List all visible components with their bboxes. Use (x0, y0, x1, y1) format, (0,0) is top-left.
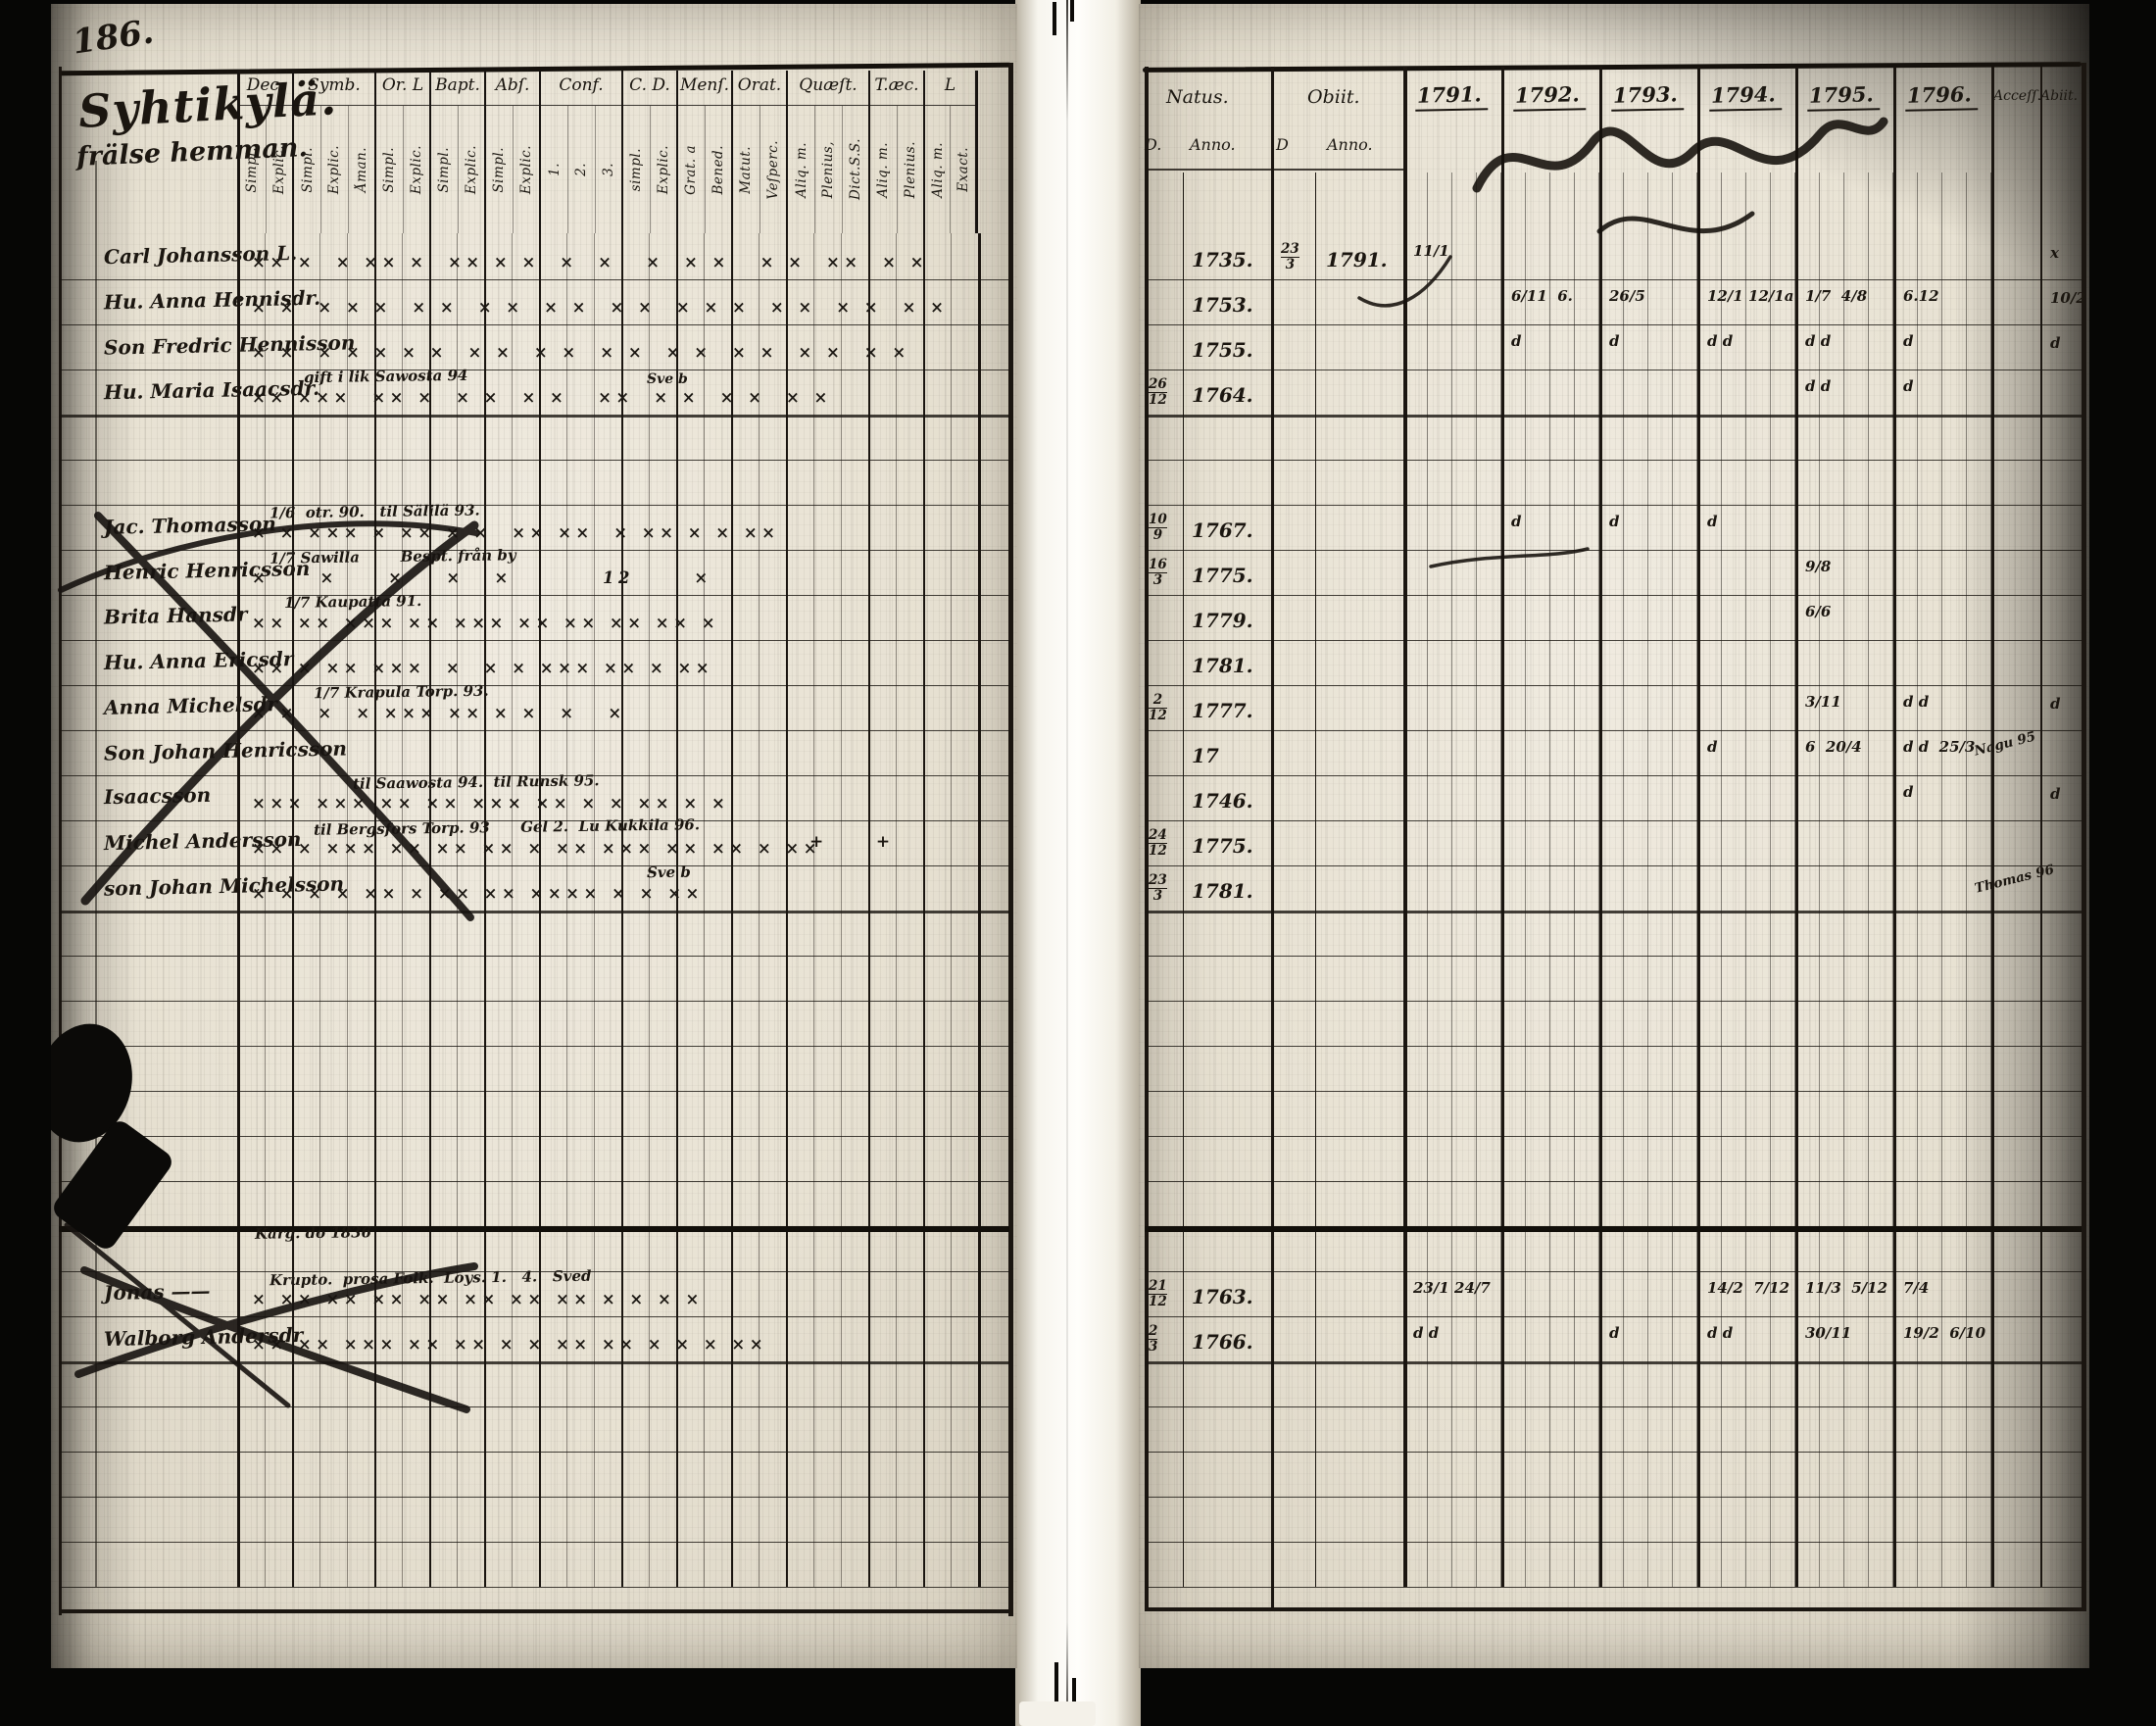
column-subgroup: Simpl.Explic. (431, 106, 484, 233)
margin-note: til Saawosta 94. til Runsk 95. (353, 771, 600, 793)
year-mark-cell: d d (1805, 332, 1831, 350)
register-row-right (1145, 911, 2082, 957)
natus-year-cell: 1755. (1192, 338, 1253, 362)
communion-marks: × × × × × 12 × (252, 568, 712, 587)
subcolumn-label: Veſperc. (765, 140, 781, 199)
accessit-cell: Thomas 96 (1973, 862, 2055, 897)
subcolumn-label: Aliq. m. (875, 142, 891, 198)
register-row-right (1145, 1497, 2082, 1543)
fraction-value: 2412 (1149, 829, 1167, 858)
register-row-right: 2121777.3/11d dd (1145, 685, 2082, 731)
register-row-left: Hu. Anna Ericsdr×× × ×× ××× × × × ××× ××… (59, 640, 1009, 686)
column-group: Or. LSimpl.Explic. (374, 71, 429, 233)
column-group-label: Bapt. (431, 71, 484, 106)
natus-year-cell: 1767. (1192, 518, 1253, 542)
column-group-label: Symb. (294, 71, 374, 106)
year-mark-cell: 1/7 4/8 (1805, 287, 1867, 305)
fraction-denominator: 12 (1149, 392, 1167, 408)
fraction-numerator: 26 (1149, 378, 1167, 392)
fraction-value: 23 (1149, 1325, 1157, 1354)
natus-day-cell: 23 (1149, 1320, 1157, 1354)
year-mark-cell: d d 25/3 (1903, 738, 1975, 756)
communion-marks: ×× ×× ××× ×× ×× × × ×× ×× × × × ×× (252, 1335, 767, 1354)
subcolumn: Simpl. (294, 106, 320, 233)
column-group-label: Conf. (541, 71, 621, 106)
natus-day-cell: 2612 (1149, 373, 1167, 407)
column-subgroup: Matut.Veſperc. (733, 106, 786, 233)
binding-stitch (1054, 1662, 1058, 1703)
year-mark-cell: 26/5 (1609, 287, 1645, 305)
column-group: Menſ.Grat. aBened. (676, 71, 731, 233)
communion-marks: ×× × ××× ×× ×× ×× × ×× ××× ×× ×× × ×× (252, 839, 821, 858)
register-row-left (59, 956, 1009, 1002)
subcolumn: Åman. (348, 106, 374, 233)
register-row-right: 231766.d ddd d30/1119/2 6/10 (1145, 1316, 2082, 1364)
register-row-right: 1091767.ddd (1145, 505, 2082, 551)
subcolumn-label: Dict.S.S. (848, 138, 863, 200)
fraction-numerator: 16 (1149, 559, 1167, 572)
subcolumn-label: Bened. (710, 145, 726, 195)
natus-year-cell: 1775. (1192, 564, 1253, 587)
name-entry: Isaacsson (104, 783, 212, 809)
natus-day-cell: 109 (1149, 509, 1167, 542)
subcolumn: Explic. (458, 106, 484, 233)
column-group-label: Quæſt. (788, 71, 868, 106)
communion-marks: ××× ××× ×× ×× ××× ×× × × ×× × × (252, 794, 729, 813)
abiit-cell: 10/2 (2050, 289, 2086, 307)
register-row-left: Karg. do 1836 (59, 1226, 1009, 1272)
natus-year-cell: 1781. (1192, 654, 1253, 677)
column-subgroup: Simpl.Explic.Åman. (294, 106, 374, 233)
register-row-left: Hu. Anna Hennisdr.× × × × × × × × × × × … (59, 279, 1009, 325)
year-mark-cell: 11/3 5/12 (1805, 1279, 1887, 1297)
year-mark-cell: 7/4 (1903, 1279, 1929, 1297)
column-subgroup: Simpl.Explic. (239, 106, 292, 233)
communion-marks: × × × × × × × × × × × × × × × × × × × × … (252, 298, 949, 317)
year-mark-cell: d (1609, 332, 1620, 350)
name-entry: Brita Hansdr (104, 602, 248, 628)
gutter-fold-line (1066, 0, 1068, 1726)
year-mark-cell: 6 20/4 (1805, 738, 1862, 756)
fraction-numerator: 23 (1281, 243, 1299, 257)
register-row-left: Michel Anderssontil Bergsfors Torp. 93 G… (59, 820, 1009, 866)
communion-marks: × ×× ×× ×× ×× ×× ×× ×× × × × × (252, 1290, 704, 1308)
book-gutter (1015, 0, 1141, 1726)
register-row-left (59, 415, 1009, 461)
margin-note: 1/7 Krapula Torp. 93. (314, 682, 489, 702)
register-row-left: son Johan MichelssonSve b× × × × ×× × ××… (59, 865, 1009, 913)
year-mark-cell: d (1707, 513, 1718, 530)
bottom-rule (59, 1609, 1011, 1613)
subcolumn: Matut. (733, 106, 759, 233)
fraction-numerator: 24 (1149, 829, 1167, 843)
register-row-right: 1735.2331791.11/1x (1145, 234, 2082, 280)
page-number: 186. (71, 12, 157, 62)
abiit-cell: d (2050, 695, 2061, 713)
subcolumn: Explic. (320, 106, 347, 233)
subcolumn: 1. (541, 106, 567, 233)
natus-day-cell: 233 (1149, 869, 1167, 903)
fraction-numerator: 23 (1149, 874, 1167, 888)
subcolumn: 2. (567, 106, 594, 233)
fraction-numerator: 10 (1149, 514, 1167, 527)
fraction-denominator: 3 (1149, 888, 1167, 904)
year-mark-cell: 6.12 (1903, 287, 1939, 305)
subcolumn: Grat. a (678, 106, 705, 233)
register-row-right: 1781. (1145, 640, 2082, 686)
column-group-label: T.æc. (870, 71, 923, 106)
subcolumn-label: 1. (547, 163, 563, 176)
register-row-right: 2331781.Thomas 96 (1145, 865, 2082, 913)
column-group-label: C. D. (623, 71, 676, 106)
year-mark-cell: 30/11 (1805, 1324, 1851, 1342)
register-row-right (1145, 1181, 2082, 1232)
register-row-left: Hu. Maria Isaacsdr.gift i lik Sawosta 94… (59, 370, 1009, 418)
year-mark-cell: 19/2 6/10 (1903, 1324, 1985, 1342)
column-subgroup: simpl.Explic. (623, 106, 676, 233)
natus-year-cell: 1763. (1192, 1285, 1253, 1308)
name-entry: Jonas —— (104, 1279, 211, 1305)
abiit-cell: d (2050, 334, 2061, 352)
margin-note: Sve b (647, 371, 688, 387)
register-row-right (1145, 1406, 2082, 1453)
subcolumn-label: Plenius, (820, 141, 836, 198)
communion-marks: × × × × ××× ×× × × × × (252, 704, 626, 722)
year-mark-cell: d (1511, 513, 1522, 530)
column-group: Conf.1.2.3. (539, 71, 621, 233)
fraction-denominator: 9 (1149, 527, 1167, 543)
subcolumn: Exact. (950, 106, 975, 233)
year-mark-cell: 9/8 (1805, 558, 1831, 575)
obiit-year-cell: 1791. (1326, 248, 1388, 271)
subcolumn: Aliq. m. (870, 106, 897, 233)
subcolumn-label: Simpl. (381, 147, 397, 193)
subcolumn-label: Explic. (271, 145, 287, 194)
subcolumn-label: Åman. (354, 147, 369, 192)
register-row-right: 21121763.23/1 24/714/2 7/1211/3 5/127/4 (1145, 1271, 2082, 1317)
register-row-right (1145, 956, 2082, 1002)
subcolumn: Veſperc. (759, 106, 786, 233)
margin-note: gift i lik Sawosta 94 (304, 367, 468, 386)
register-row-right (1145, 1226, 2082, 1272)
year-mark-cell: d d (1707, 1324, 1733, 1342)
subcolumn: Aliq. m. (788, 106, 814, 233)
fraction-denominator: 3 (1281, 257, 1299, 272)
fraction-value: 233 (1281, 243, 1299, 271)
column-subgroup: Aliq. m.Plenius. (870, 106, 923, 233)
margin-note: Sve b (647, 863, 691, 882)
subcolumn: Simpl. (376, 106, 403, 233)
subcolumn-label: Exact. (955, 147, 971, 192)
subcolumn: Simpl. (486, 106, 513, 233)
fraction-denominator: 12 (1149, 843, 1167, 859)
subcolumn-label: 3. (601, 163, 616, 176)
year-mark-cell: d (1511, 332, 1522, 350)
register-row-left (59, 1136, 1009, 1182)
fraction-numerator: 2 (1149, 1325, 1157, 1339)
year-mark-cell: d (1903, 377, 1914, 395)
column-subgroup: Simpl.Explic. (376, 106, 429, 233)
subcolumn-label: Aliq. m. (794, 142, 809, 198)
register-row-right (1145, 1001, 2082, 1047)
fraction-value: 212 (1149, 694, 1167, 722)
natus-day-cell: 163 (1149, 554, 1167, 587)
margin-note: 1/6 otr. 90. til Sälilä 93. (269, 502, 480, 522)
subcolumn-label: Explic. (409, 145, 424, 194)
column-subgroup: Aliq. m.Plenius,Dict.S.S. (788, 106, 868, 233)
register-row-left: Son Fredric Hennisson× × × × × × × × × ×… (59, 324, 1009, 370)
margin-note: 1/7 Sawilla Bespt. från by (269, 546, 516, 567)
column-group: Quæſt.Aliq. m.Plenius,Dict.S.S. (786, 71, 868, 233)
register-row-left: Jac. Thomasson1/6 otr. 90. til Sälilä 93… (59, 505, 1009, 551)
fraction-numerator: 21 (1149, 1280, 1167, 1294)
communion-marks: × × × × × × × × × × × × × × × × × × × × … (252, 343, 910, 362)
subcolumn-label: Plenius. (903, 141, 918, 198)
subcolumn: Aliq. m. (925, 106, 950, 233)
year-mark-cell: d d (1413, 1324, 1439, 1342)
subcolumn-label: Explic. (656, 145, 671, 194)
column-group-label: L (925, 71, 975, 106)
name-entry: Jac. Thomasson (104, 512, 276, 539)
register-row-right (1145, 1452, 2082, 1498)
column-group: Abſ.Simpl.Explic. (484, 71, 539, 233)
accessit-cell: Nagu 95 (1973, 729, 2037, 760)
abiit-cell: d (2050, 785, 2061, 803)
register-row-left (59, 1542, 1009, 1588)
natus-year-cell: 1735. (1192, 248, 1253, 271)
subcolumn: Explic. (513, 106, 539, 233)
column-subgroup: 1.2.3. (541, 106, 621, 233)
subcolumn-label: Explic. (518, 145, 534, 194)
subcolumn-label: Simpl. (491, 147, 507, 193)
year-mark-cell: d d (1805, 377, 1831, 395)
natus-year-cell: 1775. (1192, 834, 1253, 858)
column-subgroup: Aliq. m.Exact. (925, 106, 975, 233)
margin-note: Karg. do 1836 (255, 1223, 371, 1243)
register-row-right: 1753.6/11 6.26/512/1 12/1a1/7 4/86.1210/… (1145, 279, 2082, 325)
subcolumn-label: Grat. a (683, 145, 699, 195)
column-group: Symb.Simpl.Explic.Åman. (292, 71, 374, 233)
column-group-label: Orat. (733, 71, 786, 106)
register-row-right (1145, 1046, 2082, 1092)
natus-year-cell: 1764. (1192, 383, 1253, 407)
natus-year-cell: 1766. (1192, 1330, 1253, 1354)
scanned-book-photo: 186. Syhtikylä. frälse hemman. Dec.Simpl… (0, 0, 2156, 1726)
year-mark-cell: 23/1 24/7 (1413, 1279, 1491, 1297)
register-row-left: Walborg Andersdr×× ×× ××× ×× ×× × × ×× ×… (59, 1316, 1009, 1364)
register-row-right: 26121764.d dd (1145, 370, 2082, 418)
register-row-left (59, 460, 1009, 506)
communion-marks: ×× ×× ××× ×× ××× ×× ×× ×× ×× × (252, 614, 719, 632)
subcolumn-label: Explic. (326, 145, 342, 194)
register-row-right: 1755.ddd dd ddd (1145, 324, 2082, 370)
binding-stitch (1070, 0, 1074, 22)
column-group: Bapt.Simpl.Explic. (429, 71, 484, 233)
natus-year-cell: 1746. (1192, 789, 1253, 813)
fraction-denominator: 3 (1149, 572, 1167, 588)
register-row-right (1145, 1091, 2082, 1137)
year-mark-cell: d d (1903, 693, 1929, 711)
register-row-left (59, 1046, 1009, 1092)
communion-marks: ×× × × ×× × ×× × × × × × × × × × ×× × × (252, 253, 928, 271)
natus-year-cell: 1753. (1192, 293, 1253, 317)
column-group: Orat.Matut.Veſperc. (731, 71, 786, 233)
year-mark-cell: d (1707, 738, 1718, 756)
year-mark-cell: d d (1707, 332, 1733, 350)
fraction-value: 233 (1149, 874, 1167, 903)
obiit-day-cell: 233 (1281, 238, 1299, 271)
natus-day-cell: 2112 (1149, 1275, 1167, 1308)
communion-marks: × × ××× × ×× × × ×× ×× × ×× × × ×× (252, 523, 780, 542)
natus-day-cell: 2412 (1149, 824, 1167, 858)
communion-marks: ×× × ×× ××× × × × ××× ×× × ×× (252, 659, 713, 677)
bottom-rule (1145, 1607, 2082, 1611)
register-row-left: Henric Henricsson1/7 Sawilla Bespt. från… (59, 550, 1009, 596)
subcolumn: 3. (595, 106, 621, 233)
communion-marks: × × × × ×× × ×× ×× ×××× × × ×× (252, 884, 704, 903)
subcolumn: Simpl. (239, 106, 266, 233)
register-row-left (59, 1001, 1009, 1047)
register-row-left: Anna Michelsdr1/7 Krapula Torp. 93.× × ×… (59, 685, 1009, 731)
fraction-denominator: 3 (1149, 1339, 1157, 1355)
natus-year-cell: 17 (1192, 744, 1219, 767)
column-group-label: Dec. (239, 71, 292, 106)
subcolumn: Explic. (650, 106, 676, 233)
extra-marks: + + (809, 832, 896, 852)
register-row-left: Carl Johansson L.×× × × ×× × ×× × × × × … (59, 234, 1009, 280)
natus-year-cell: 1781. (1192, 879, 1253, 903)
register-row-left (59, 911, 1009, 957)
subcolumn: Bened. (705, 106, 731, 233)
column-group-label: Or. L (376, 71, 429, 106)
subcolumn-label: 2. (573, 163, 589, 176)
column-group: Dec.Simpl.Explic. (237, 71, 292, 233)
register-row-right: 1746.dd (1145, 775, 2082, 821)
subcolumn-label: simpl. (628, 148, 644, 191)
subcolumn: Dict.S.S. (842, 106, 868, 233)
communion-marks: ×× ××× ×× × × × × × ×× × × × × × × (252, 388, 832, 407)
subcolumn: Plenius, (814, 106, 841, 233)
subcolumn: Explic. (266, 106, 292, 233)
register-row-right (1145, 415, 2082, 461)
year-mark-cell: 3/11 (1805, 693, 1841, 711)
printed-column-headers: Dec.Simpl.Explic.Symb.Simpl.Explic.Åman.… (237, 71, 978, 233)
register-row-left: Isaacssontil Saawosta 94. til Runsk 95.×… (59, 775, 1009, 821)
column-group-label: Menſ. (678, 71, 731, 106)
register-row-left (59, 1497, 1009, 1543)
margin-note: 1/7 Kaupatta 91. (284, 592, 422, 612)
register-row-right: 1779.6/6 (1145, 595, 2082, 641)
subcolumn-label: Simpl. (300, 147, 316, 193)
natus-day-cell: 212 (1149, 689, 1167, 722)
register-row-right (1145, 1542, 2082, 1588)
column-group-label: Abſ. (486, 71, 539, 106)
subcolumn: Plenius. (897, 106, 923, 233)
subcolumn: Simpl. (431, 106, 458, 233)
register-row-left (59, 1406, 1009, 1453)
fraction-numerator: 2 (1149, 694, 1167, 708)
year-mark-cell: d (1903, 783, 1914, 801)
fraction-value: 163 (1149, 559, 1167, 587)
register-row-right (1145, 460, 2082, 506)
year-mark-cell: d (1903, 332, 1914, 350)
register-row-right: 1631775.9/8 (1145, 550, 2082, 596)
subcolumn-label: Simpl. (244, 147, 260, 193)
fraction-value: 2612 (1149, 378, 1167, 407)
fraction-denominator: 12 (1149, 1294, 1167, 1309)
fraction-value: 2112 (1149, 1280, 1167, 1308)
margin-note: Krupto. prosa Folk. Loys. 1. 4. Sved (269, 1267, 592, 1290)
left-page: 186. Syhtikylä. frälse hemman. Dec.Simpl… (51, 4, 1017, 1668)
register-row-right (1145, 1361, 2082, 1407)
subcolumn-label: Simpl. (436, 147, 452, 193)
subcolumn: Explic. (403, 106, 429, 233)
column-group: C. D.simpl.Explic. (621, 71, 676, 233)
abiit-cell: x (2050, 244, 2059, 262)
page-edge-tab (1019, 1701, 1096, 1726)
year-mark-cell: d (1609, 513, 1620, 530)
register-row-left (59, 1361, 1009, 1407)
column-group: T.æc.Aliq. m.Plenius. (868, 71, 923, 233)
column-subgroup: Grat. aBened. (678, 106, 731, 233)
register-row-left (59, 1181, 1009, 1232)
register-row-left: Jonas ——Krupto. prosa Folk. Loys. 1. 4. … (59, 1271, 1009, 1317)
subcolumn-label: Aliq. m. (930, 142, 946, 198)
column-group: LAliq. m.Exact. (923, 71, 978, 233)
fraction-value: 109 (1149, 514, 1167, 542)
year-mark-cell: 6/6 (1805, 603, 1831, 620)
register-row-left (59, 1091, 1009, 1137)
register-row-right: 17d6 20/4d d 25/3Nagu 95 (1145, 730, 2082, 776)
column-subgroup: Simpl.Explic. (486, 106, 539, 233)
natus-year-cell: 1779. (1192, 609, 1253, 632)
register-row-left (59, 1452, 1009, 1498)
right-page: Natus. Obiit. D. Anno. D Anno. Acceſſ. A… (1139, 4, 2089, 1668)
fraction-denominator: 12 (1149, 708, 1167, 723)
register-row-left: Brita Hansdr1/7 Kaupatta 91.×× ×× ××× ××… (59, 595, 1009, 641)
register-row-right: 24121775. (1145, 820, 2082, 866)
binding-stitch (1053, 2, 1056, 35)
year-mark-cell: 11/1 (1413, 242, 1449, 260)
year-mark-cell: 14/2 7/12 (1707, 1279, 1789, 1297)
subcolumn-label: Matut. (738, 146, 754, 194)
year-mark-cell: 12/1 12/1a (1707, 287, 1794, 305)
name-entry: Son Johan Henricsson (104, 736, 347, 764)
subcolumn: simpl. (623, 106, 650, 233)
subcolumn-label: Explic. (464, 145, 479, 194)
year-mark-cell: 6/11 6. (1511, 287, 1573, 305)
register-row-left: Son Johan Henricsson (59, 730, 1009, 776)
natus-year-cell: 1777. (1192, 699, 1253, 722)
register-row-right (1145, 1136, 2082, 1182)
year-mark-cell: d (1609, 1324, 1620, 1342)
